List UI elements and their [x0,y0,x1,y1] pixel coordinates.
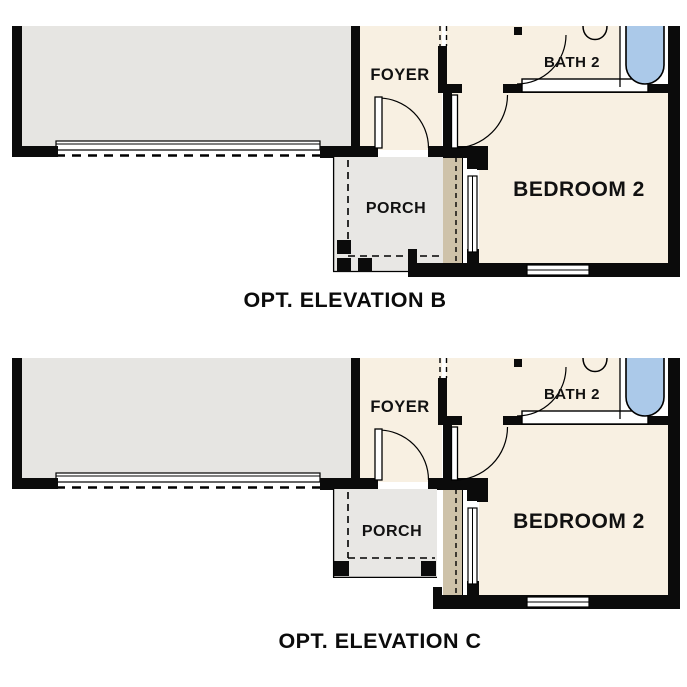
floor-plan-canvas: FOYER BATH 2 BEDROOM 2 PORCH OPT. ELEVAT… [0,0,687,687]
porch-area-c [333,489,445,609]
plan-caption-b: OPT. ELEVATION B [243,288,446,312]
foyer-label: FOYER [370,66,429,84]
porch-label: PORCH [362,523,422,540]
porch-post [337,258,351,272]
bath-label: BATH 2 [544,54,600,71]
porch-post [358,258,372,272]
plan-elevation-c: FOYER BATH 2 BEDROOM 2 PORCH OPT. ELEVAT… [12,358,680,653]
foyer-label: FOYER [370,398,429,416]
plan-elevation-b: FOYER BATH 2 BEDROOM 2 PORCH OPT. ELEVAT… [12,26,680,312]
plan-caption-c: OPT. ELEVATION C [278,629,481,653]
porch-post [421,561,436,576]
wall-segment [408,249,417,266]
wall-segment [433,587,442,606]
porch-post [337,240,351,254]
bedroom-label: BEDROOM 2 [513,178,645,201]
porch-area-b [333,157,445,277]
porch-post [334,561,349,576]
porch-label: PORCH [366,200,426,217]
bedroom-label: BEDROOM 2 [513,510,645,533]
bath-label: BATH 2 [544,386,600,403]
floor-plan-figure: FOYER BATH 2 BEDROOM 2 PORCH OPT. ELEVAT… [0,0,687,687]
